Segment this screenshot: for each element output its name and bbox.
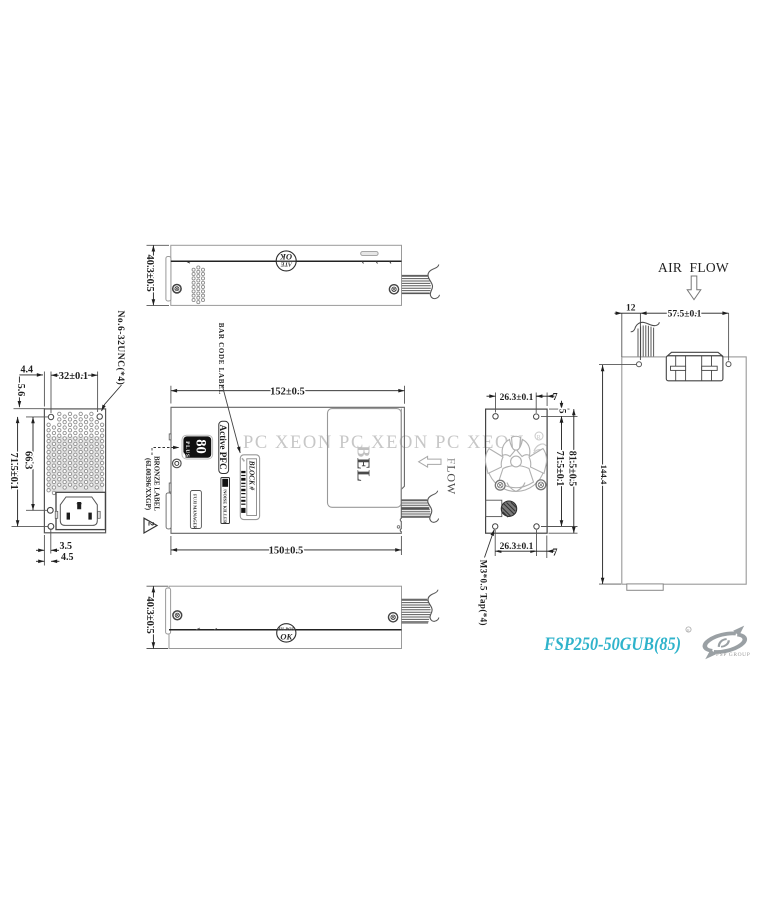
svg-text:71.5±0.1: 71.5±0.1 xyxy=(8,453,19,490)
svg-text:FUJI MANAGER: FUJI MANAGER xyxy=(193,494,198,530)
svg-text:144.4: 144.4 xyxy=(599,465,609,485)
svg-text:AIR FLOW: AIR FLOW xyxy=(658,260,729,275)
svg-text:71.5±0.1: 71.5±0.1 xyxy=(554,451,565,487)
svg-text:OK: OK xyxy=(280,632,293,642)
svg-text:R: R xyxy=(537,435,541,441)
svg-text:BRONZE LABEL: BRONZE LABEL xyxy=(153,456,161,511)
svg-text:2: 2 xyxy=(146,522,156,526)
svg-text:32±0.1: 32±0.1 xyxy=(59,371,88,382)
svg-text:26.3±0.1: 26.3±0.1 xyxy=(500,542,534,552)
svg-text:4.4: 4.4 xyxy=(21,365,34,376)
svg-text:4.5: 4.5 xyxy=(61,552,74,563)
svg-text:66.3: 66.3 xyxy=(23,451,34,469)
svg-text:12: 12 xyxy=(626,304,636,314)
svg-text:R: R xyxy=(687,628,690,633)
svg-text:No.6-32UNC(*4): No.6-32UNC(*4) xyxy=(115,311,126,386)
svg-text:M3*0.5 Tap(*4): M3*0.5 Tap(*4) xyxy=(479,560,489,626)
svg-text:FSP250-50GUB(85): FSP250-50GUB(85) xyxy=(543,634,681,655)
svg-text:7: 7 xyxy=(553,392,558,403)
svg-text:40.3±0.5: 40.3±0.5 xyxy=(144,255,155,292)
svg-text:80: 80 xyxy=(192,439,208,454)
svg-text:FLOW: FLOW xyxy=(445,458,459,495)
svg-text:FSP GROUP: FSP GROUP xyxy=(716,652,750,658)
svg-text:PC XEON PC XEON PC XEON: PC XEON PC XEON PC XEON xyxy=(243,433,525,453)
svg-text:26.3±0.1: 26.3±0.1 xyxy=(500,393,534,403)
svg-text:3.5: 3.5 xyxy=(60,541,73,552)
svg-text:/NOISE KILLER: /NOISE KILLER xyxy=(223,488,228,524)
svg-text:7: 7 xyxy=(553,547,558,558)
svg-text:OK: OK xyxy=(279,252,292,262)
svg-text:81.5±0.5: 81.5±0.5 xyxy=(567,451,578,487)
svg-text:(6L00396/XXGP): (6L00396/XXGP) xyxy=(144,458,152,511)
svg-text:150±0.5: 150±0.5 xyxy=(269,546,304,557)
svg-text:57.5±0.1: 57.5±0.1 xyxy=(668,310,702,320)
svg-text:BLOCK #: BLOCK # xyxy=(248,460,256,491)
svg-text:BAR CODE LABEL: BAR CODE LABEL xyxy=(217,323,225,395)
svg-text:BEL: BEL xyxy=(354,446,374,483)
svg-text:152±0.5: 152±0.5 xyxy=(270,386,305,397)
svg-text:5: 5 xyxy=(557,409,567,414)
svg-text:40.3±0.5: 40.3±0.5 xyxy=(144,597,155,634)
svg-text:5.6: 5.6 xyxy=(15,384,26,397)
svg-text:Active PFC: Active PFC xyxy=(218,425,228,470)
